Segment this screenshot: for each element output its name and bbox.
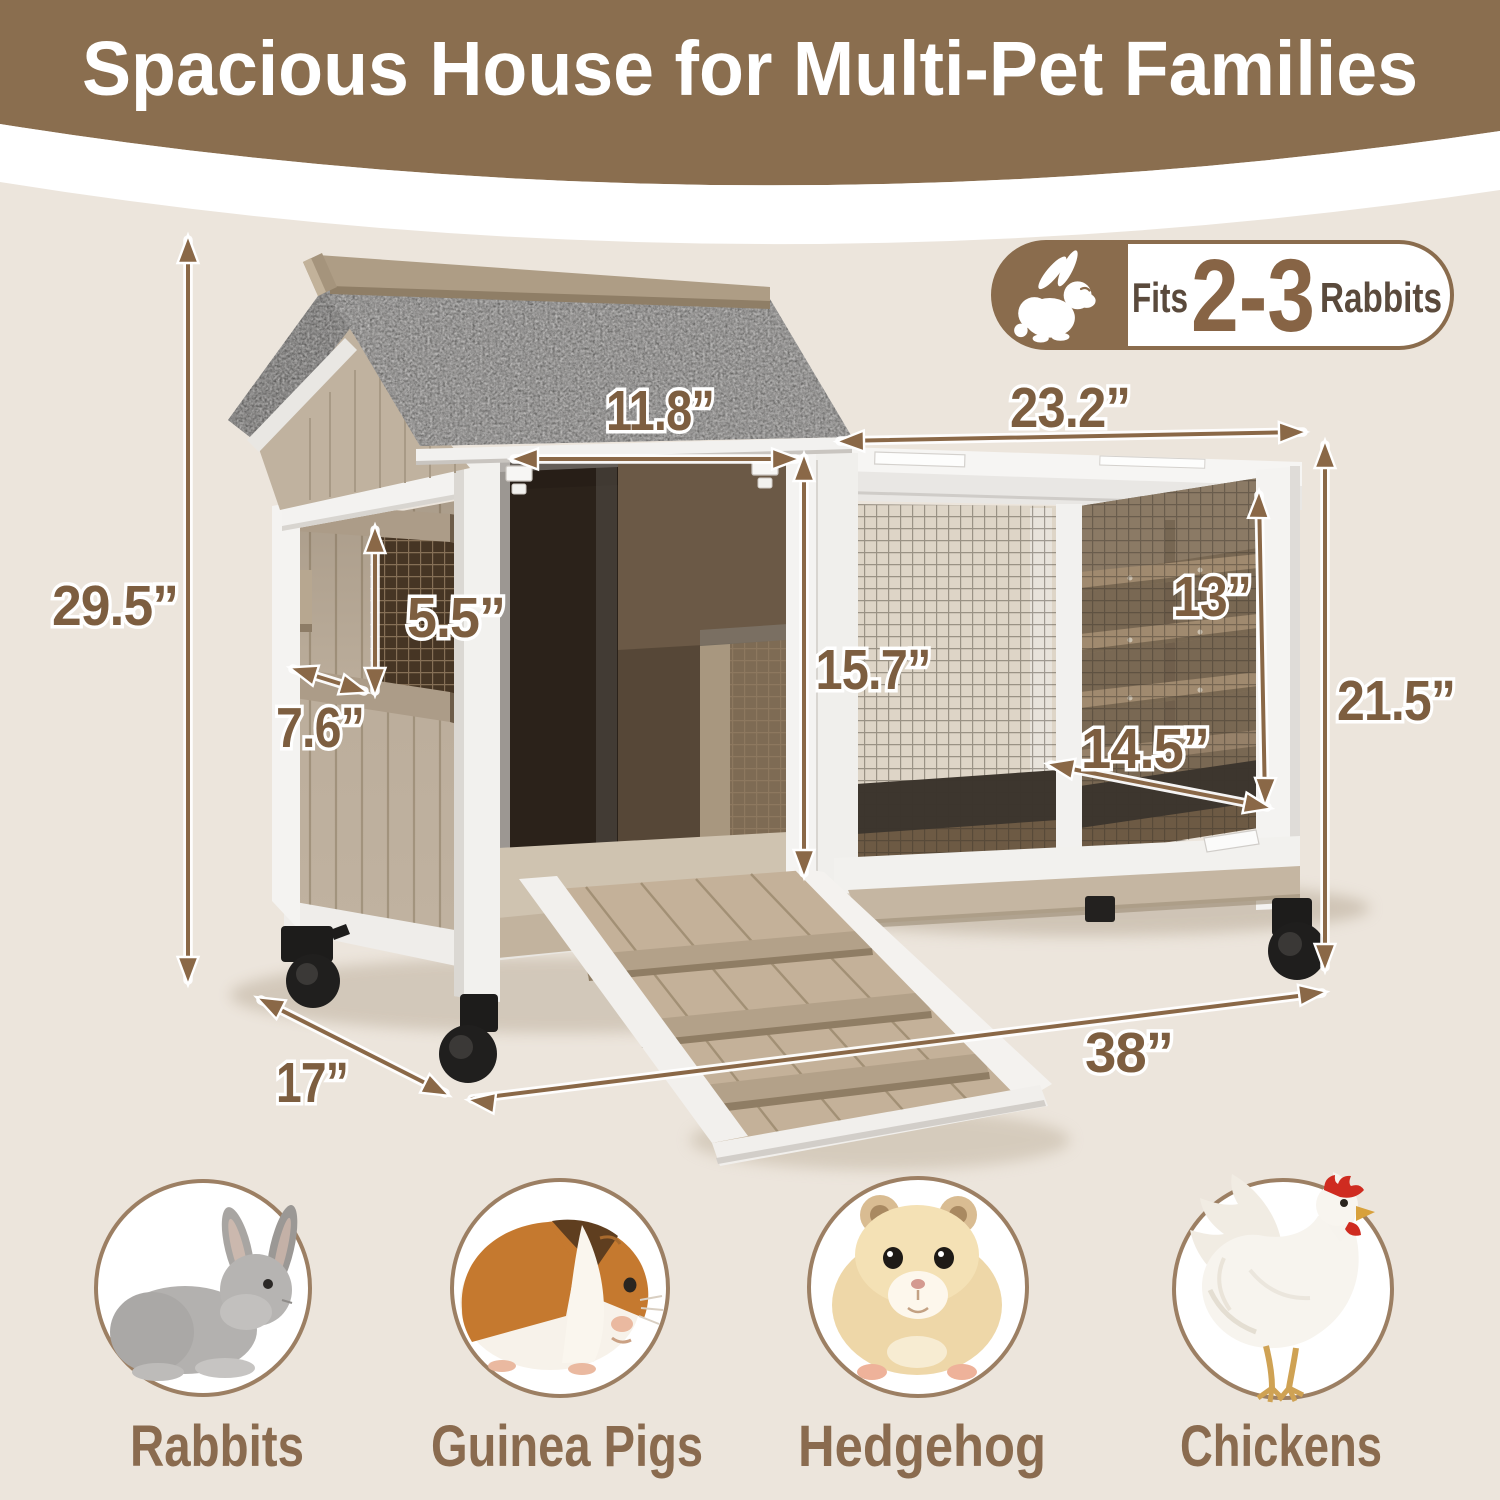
svg-text:23.2”: 23.2”: [1010, 376, 1130, 440]
svg-text:2-3: 2-3: [1191, 238, 1315, 353]
svg-text:Rabbits: Rabbits: [1320, 274, 1442, 321]
svg-text:Spacious House for Multi-Pet F: Spacious House for Multi-Pet Families: [82, 26, 1418, 112]
svg-text:17”: 17”: [276, 1051, 348, 1115]
svg-text:Hedgehog: Hedgehog: [798, 1414, 1046, 1479]
svg-text:29.5”: 29.5”: [52, 574, 178, 638]
svg-text:14.5”: 14.5”: [1081, 717, 1209, 781]
svg-text:38”: 38”: [1085, 1021, 1173, 1085]
svg-text:Chickens: Chickens: [1180, 1414, 1382, 1479]
svg-text:Rabbits: Rabbits: [130, 1414, 304, 1479]
svg-text:15.7”: 15.7”: [816, 638, 931, 702]
svg-text:Guinea Pigs: Guinea Pigs: [431, 1414, 703, 1479]
svg-text:7.6”: 7.6”: [276, 696, 364, 760]
svg-text:13”: 13”: [1173, 565, 1251, 629]
svg-text:5.5”: 5.5”: [407, 586, 505, 650]
svg-text:21.5”: 21.5”: [1337, 669, 1455, 733]
svg-text:11.8”: 11.8”: [606, 379, 714, 443]
svg-text:Fits: Fits: [1132, 274, 1188, 321]
